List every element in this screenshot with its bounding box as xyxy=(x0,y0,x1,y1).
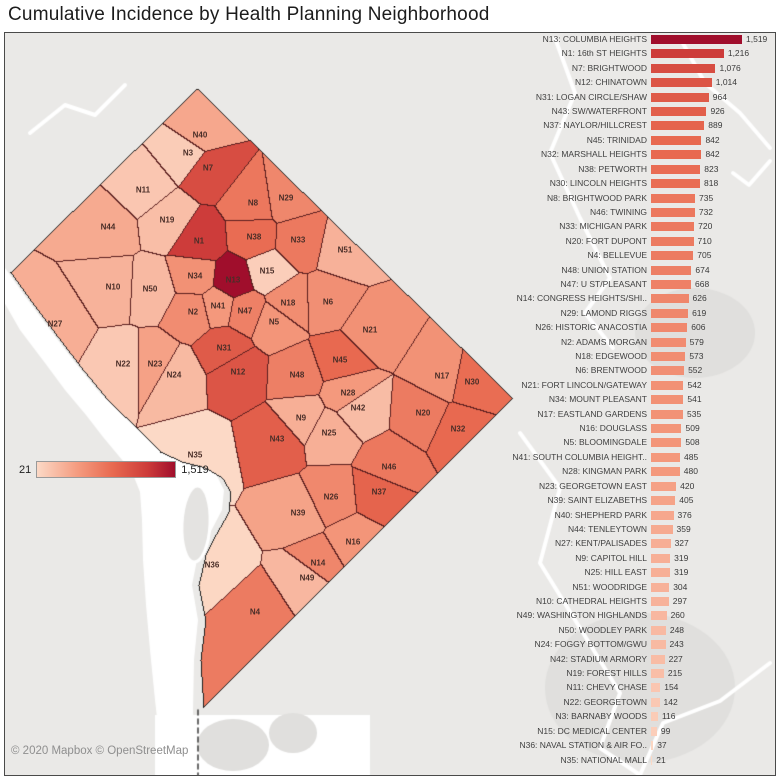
bar-row[interactable]: N1: 16th ST HEIGHTS1,216 xyxy=(5,47,775,60)
bar-category-label: N50: WOODLEY PARK xyxy=(559,624,648,637)
bar-mark[interactable] xyxy=(651,237,694,246)
bar-row[interactable]: N13: COLUMBIA HEIGHTS1,519 xyxy=(5,33,775,46)
bar-category-label: N12: CHINATOWN xyxy=(575,76,647,89)
bar-mark[interactable] xyxy=(651,655,665,664)
bar-category-label: N6: BRENTWOOD xyxy=(575,364,647,377)
bar-mark[interactable] xyxy=(651,438,681,447)
bar-category-label: N5: BLOOMINGDALE xyxy=(563,436,647,449)
bar-value-label: 99 xyxy=(661,725,670,738)
bar-value-label: 1,216 xyxy=(728,47,749,60)
bar-row[interactable]: N28: KINGMAN PARK480 xyxy=(5,465,775,478)
bar-category-label: N13: COLUMBIA HEIGHTS xyxy=(543,33,647,46)
bar-category-label: N8: BRIGHTWOOD PARK xyxy=(547,192,647,205)
bar-row[interactable]: N2: ADAMS MORGAN579 xyxy=(5,336,775,349)
bar-row[interactable]: N9: CAPITOL HILL319 xyxy=(5,552,775,565)
bar-value-label: 964 xyxy=(713,91,727,104)
bar-category-label: N34: MOUNT PLEASANT xyxy=(549,393,647,406)
bar-category-label: N44: TENLEYTOWN xyxy=(568,523,647,536)
bar-mark[interactable] xyxy=(651,366,684,375)
bar-row[interactable]: N43: SW/WATERFRONT926 xyxy=(5,105,775,118)
bar-row[interactable]: N14: CONGRESS HEIGHTS/SHI..626 xyxy=(5,292,775,305)
bar-chart: N13: COLUMBIA HEIGHTS1,519N1: 16th ST HE… xyxy=(5,33,775,775)
bar-category-label: N40: SHEPHERD PARK xyxy=(555,509,647,522)
bar-row[interactable]: N26: HISTORIC ANACOSTIA606 xyxy=(5,321,775,334)
bar-mark[interactable] xyxy=(651,179,700,188)
bar-category-label: N41: SOUTH COLUMBIA HEIGHT.. xyxy=(512,451,647,464)
bar-mark[interactable] xyxy=(651,64,715,73)
bar-row[interactable]: N15: DC MEDICAL CENTER99 xyxy=(5,725,775,738)
bar-value-label: 248 xyxy=(670,624,684,637)
bar-row[interactable]: N18: EDGEWOOD573 xyxy=(5,350,775,363)
bar-category-label: N4: BELLEVUE xyxy=(587,249,647,262)
bar-category-label: N11: CHEVY CHASE xyxy=(567,681,647,694)
bar-category-label: N21: FORT LINCOLN/GATEWAY xyxy=(521,379,647,392)
bar-value-label: 243 xyxy=(670,638,684,651)
bar-row[interactable]: N38: PETWORTH823 xyxy=(5,163,775,176)
bar-category-label: N16: DOUGLASS xyxy=(579,422,647,435)
bar-value-label: 619 xyxy=(692,307,706,320)
bar-value-label: 509 xyxy=(685,422,699,435)
bar-mark[interactable] xyxy=(651,712,658,721)
bar-value-label: 818 xyxy=(704,177,718,190)
bar-row[interactable]: N24: FOGGY BOTTOM/GWU243 xyxy=(5,638,775,651)
bar-mark[interactable] xyxy=(651,280,691,289)
bar-category-label: N45: TRINIDAD xyxy=(587,134,647,147)
bar-row[interactable]: N6: BRENTWOOD552 xyxy=(5,364,775,377)
bar-mark[interactable] xyxy=(651,539,671,548)
map-panel: N13N1N7N12N31N43N37N45N32N38N30N8N46N33N… xyxy=(4,32,776,776)
dashboard: Cumulative Incidence by Health Planning … xyxy=(0,0,780,780)
bar-mark[interactable] xyxy=(651,525,673,534)
bar-mark[interactable] xyxy=(651,93,709,102)
bar-row[interactable]: N5: BLOOMINGDALE508 xyxy=(5,436,775,449)
bar-mark[interactable] xyxy=(651,294,689,303)
bar-value-label: 376 xyxy=(678,509,692,522)
bar-row[interactable]: N23: GEORGETOWN EAST420 xyxy=(5,480,775,493)
bar-mark[interactable] xyxy=(651,352,685,361)
bar-category-label: N9: CAPITOL HILL xyxy=(575,552,647,565)
bar-mark[interactable] xyxy=(651,698,660,707)
bar-category-label: N20: FORT DUPONT xyxy=(566,235,647,248)
bar-mark[interactable] xyxy=(651,309,688,318)
bar-row[interactable]: N46: TWINING732 xyxy=(5,206,775,219)
bar-value-label: 735 xyxy=(699,192,713,205)
bar-mark[interactable] xyxy=(651,194,695,203)
bar-value-label: 705 xyxy=(697,249,711,262)
bar-row[interactable]: N51: WOODRIDGE304 xyxy=(5,581,775,594)
bar-mark[interactable] xyxy=(651,150,701,159)
bar-category-label: N46: TWINING xyxy=(590,206,647,219)
bar-category-label: N14: CONGRESS HEIGHTS/SHI.. xyxy=(517,292,647,305)
bar-value-label: 154 xyxy=(664,681,678,694)
bar-mark[interactable] xyxy=(651,107,706,116)
bar-category-label: N26: HISTORIC ANACOSTIA xyxy=(535,321,647,334)
bar-mark[interactable] xyxy=(651,78,712,87)
bar-row[interactable]: N48: UNION STATION674 xyxy=(5,264,775,277)
bar-category-label: N37: NAYLOR/HILLCREST xyxy=(543,119,647,132)
bar-value-label: 142 xyxy=(664,696,678,709)
bar-value-label: 626 xyxy=(693,292,707,305)
bar-value-label: 674 xyxy=(695,264,709,277)
bar-row[interactable]: N21: FORT LINCOLN/GATEWAY542 xyxy=(5,379,775,392)
bar-mark[interactable] xyxy=(651,611,667,620)
bar-category-label: N25: HILL EAST xyxy=(584,566,647,579)
bar-mark[interactable] xyxy=(651,266,691,275)
bar-category-label: N23: GEORGETOWN EAST xyxy=(539,480,647,493)
bar-category-label: N31: LOGAN CIRCLE/SHAW xyxy=(536,91,647,104)
bar-value-label: 842 xyxy=(705,148,719,161)
bar-category-label: N30: LINCOLN HEIGHTS xyxy=(550,177,647,190)
bar-row[interactable]: N34: MOUNT PLEASANT541 xyxy=(5,393,775,406)
bar-value-label: 304 xyxy=(673,581,687,594)
bar-category-label: N24: FOGGY BOTTOM/GWU xyxy=(534,638,647,651)
bar-value-label: 606 xyxy=(691,321,705,334)
bar-mark[interactable] xyxy=(651,756,652,765)
bar-value-label: 21 xyxy=(656,754,665,767)
bar-value-label: 720 xyxy=(698,220,712,233)
bar-value-label: 37 xyxy=(657,739,666,752)
bar-value-label: 319 xyxy=(674,566,688,579)
bar-row[interactable]: N29: LAMOND RIGGS619 xyxy=(5,307,775,320)
bar-row[interactable]: N12: CHINATOWN1,014 xyxy=(5,76,775,89)
bar-row[interactable]: N27: KENT/PALISADES327 xyxy=(5,537,775,550)
bar-value-label: 573 xyxy=(689,350,703,363)
bar-row[interactable]: N7: BRIGHTWOOD1,076 xyxy=(5,62,775,75)
bar-value-label: 227 xyxy=(669,653,683,666)
bar-value-label: 297 xyxy=(673,595,687,608)
bar-row[interactable]: N3: BARNABY WOODS116 xyxy=(5,710,775,723)
bar-category-label: N3: BARNABY WOODS xyxy=(556,710,647,723)
bar-value-label: 542 xyxy=(687,379,701,392)
bar-category-label: N19: FOREST HILLS xyxy=(566,667,647,680)
bar-value-label: 1,014 xyxy=(716,76,737,89)
bar-value-label: 732 xyxy=(699,206,713,219)
bar-row[interactable]: N31: LOGAN CIRCLE/SHAW964 xyxy=(5,91,775,104)
bar-value-label: 485 xyxy=(684,451,698,464)
bar-mark[interactable] xyxy=(651,410,683,419)
bar-value-label: 508 xyxy=(685,436,699,449)
bar-row[interactable]: N39: SAINT ELIZABETHS405 xyxy=(5,494,775,507)
bar-mark[interactable] xyxy=(651,511,674,520)
bar-category-label: N51: WOODRIDGE xyxy=(572,581,647,594)
page-title: Cumulative Incidence by Health Planning … xyxy=(8,4,489,26)
bar-value-label: 1,519 xyxy=(746,33,767,46)
bar-mark[interactable] xyxy=(651,597,669,606)
bar-row[interactable]: N30: LINCOLN HEIGHTS818 xyxy=(5,177,775,190)
bar-row[interactable]: N33: MICHIGAN PARK720 xyxy=(5,220,775,233)
bar-category-label: N18: EDGEWOOD xyxy=(575,350,647,363)
bar-mark[interactable] xyxy=(651,323,687,332)
bar-value-label: 889 xyxy=(708,119,722,132)
bar-mark[interactable] xyxy=(651,338,686,347)
bar-category-label: N1: 16th ST HEIGHTS xyxy=(562,47,647,60)
bar-category-label: N49: WASHINGTON HIGHLANDS xyxy=(517,609,647,622)
bar-value-label: 823 xyxy=(704,163,718,176)
bar-mark[interactable] xyxy=(651,453,680,462)
bar-mark[interactable] xyxy=(651,669,664,678)
bar-mark[interactable] xyxy=(651,626,666,635)
bar-category-label: N15: DC MEDICAL CENTER xyxy=(537,725,647,738)
bar-category-label: N27: KENT/PALISADES xyxy=(555,537,647,550)
bar-category-label: N43: SW/WATERFRONT xyxy=(552,105,647,118)
bar-mark[interactable] xyxy=(651,482,676,491)
bar-category-label: N47: U ST/PLEASANT xyxy=(561,278,647,291)
bar-mark[interactable] xyxy=(651,741,653,750)
bar-value-label: 541 xyxy=(687,393,701,406)
bar-category-label: N17: EASTLAND GARDENS xyxy=(537,408,647,421)
bar-value-label: 842 xyxy=(705,134,719,147)
bar-mark[interactable] xyxy=(651,395,683,404)
bar-value-label: 579 xyxy=(690,336,704,349)
bar-category-label: N42: STADIUM ARMORY xyxy=(550,653,647,666)
bar-mark[interactable] xyxy=(651,222,694,231)
bar-value-label: 926 xyxy=(710,105,724,118)
bar-row[interactable]: N22: GEORGETOWN142 xyxy=(5,696,775,709)
bar-value-label: 215 xyxy=(668,667,682,680)
bar-row[interactable]: N45: TRINIDAD842 xyxy=(5,134,775,147)
bar-row[interactable]: N25: HILL EAST319 xyxy=(5,566,775,579)
bar-category-label: N22: GEORGETOWN xyxy=(564,696,647,709)
bar-category-label: N29: LAMOND RIGGS xyxy=(561,307,647,320)
bar-row[interactable]: N8: BRIGHTWOOD PARK735 xyxy=(5,192,775,205)
bar-mark[interactable] xyxy=(651,467,680,476)
bar-mark[interactable] xyxy=(651,49,724,58)
bar-mark[interactable] xyxy=(651,121,704,130)
bar-value-label: 319 xyxy=(674,552,688,565)
bar-row[interactable]: N37: NAYLOR/HILLCREST889 xyxy=(5,119,775,132)
bar-value-label: 405 xyxy=(679,494,693,507)
bar-row[interactable]: N10: CATHEDRAL HEIGHTS297 xyxy=(5,595,775,608)
bar-row[interactable]: N40: SHEPHERD PARK376 xyxy=(5,509,775,522)
bar-value-label: 420 xyxy=(680,480,694,493)
bar-mark[interactable] xyxy=(651,554,670,563)
bar-category-label: N38: PETWORTH xyxy=(578,163,647,176)
bar-mark[interactable] xyxy=(651,136,701,145)
bar-value-label: 116 xyxy=(662,710,676,723)
bar-mark[interactable] xyxy=(651,424,681,433)
bar-category-label: N28: KINGMAN PARK xyxy=(562,465,647,478)
bar-value-label: 327 xyxy=(675,537,689,550)
bar-value-label: 359 xyxy=(677,523,691,536)
bar-value-label: 552 xyxy=(688,364,702,377)
bar-row[interactable]: N32: MARSHALL HEIGHTS842 xyxy=(5,148,775,161)
bar-value-label: 1,076 xyxy=(719,62,740,75)
bar-row[interactable]: N47: U ST/PLEASANT668 xyxy=(5,278,775,291)
bar-value-label: 710 xyxy=(698,235,712,248)
bar-category-label: N39: SAINT ELIZABETHS xyxy=(547,494,647,507)
bar-row[interactable]: N11: CHEVY CHASE154 xyxy=(5,681,775,694)
bar-value-label: 260 xyxy=(671,609,685,622)
bar-value-label: 480 xyxy=(684,465,698,478)
bar-mark[interactable] xyxy=(651,208,695,217)
bar-mark[interactable] xyxy=(651,640,666,649)
bar-row[interactable]: N50: WOODLEY PARK248 xyxy=(5,624,775,637)
bar-mark[interactable] xyxy=(651,381,683,390)
bar-row[interactable]: N49: WASHINGTON HIGHLANDS260 xyxy=(5,609,775,622)
bar-category-label: N48: UNION STATION xyxy=(561,264,647,277)
bar-mark[interactable] xyxy=(651,251,693,260)
bar-row[interactable]: N42: STADIUM ARMORY227 xyxy=(5,653,775,666)
bar-mark[interactable] xyxy=(651,35,742,44)
bar-row[interactable]: N41: SOUTH COLUMBIA HEIGHT..485 xyxy=(5,451,775,464)
bar-mark[interactable] xyxy=(651,683,660,692)
bar-row[interactable]: N19: FOREST HILLS215 xyxy=(5,667,775,680)
bar-row[interactable]: N17: EASTLAND GARDENS535 xyxy=(5,408,775,421)
bar-value-label: 668 xyxy=(695,278,709,291)
bar-category-label: N7: BRIGHTWOOD xyxy=(572,62,647,75)
bar-category-label: N32: MARSHALL HEIGHTS xyxy=(541,148,647,161)
bar-mark[interactable] xyxy=(651,165,700,174)
bar-row[interactable]: N16: DOUGLASS509 xyxy=(5,422,775,435)
bar-row[interactable]: N44: TENLEYTOWN359 xyxy=(5,523,775,536)
bar-category-label: N33: MICHIGAN PARK xyxy=(559,220,647,233)
bar-mark[interactable] xyxy=(651,496,675,505)
bar-row[interactable]: N4: BELLEVUE705 xyxy=(5,249,775,262)
bar-value-label: 535 xyxy=(687,408,701,421)
bar-mark[interactable] xyxy=(651,583,669,592)
bar-category-label: N2: ADAMS MORGAN xyxy=(561,336,647,349)
map-attribution: © 2020 Mapbox © OpenStreetMap xyxy=(11,745,188,757)
bar-category-label: N35: NATIONAL MALL xyxy=(561,754,647,767)
bar-row[interactable]: N20: FORT DUPONT710 xyxy=(5,235,775,248)
bar-category-label: N10: CATHEDRAL HEIGHTS xyxy=(536,595,647,608)
bar-category-label: N36: NAVAL STATION & AIR FO.. xyxy=(519,739,647,752)
bar-mark[interactable] xyxy=(651,568,670,577)
bar-mark[interactable] xyxy=(651,727,657,736)
